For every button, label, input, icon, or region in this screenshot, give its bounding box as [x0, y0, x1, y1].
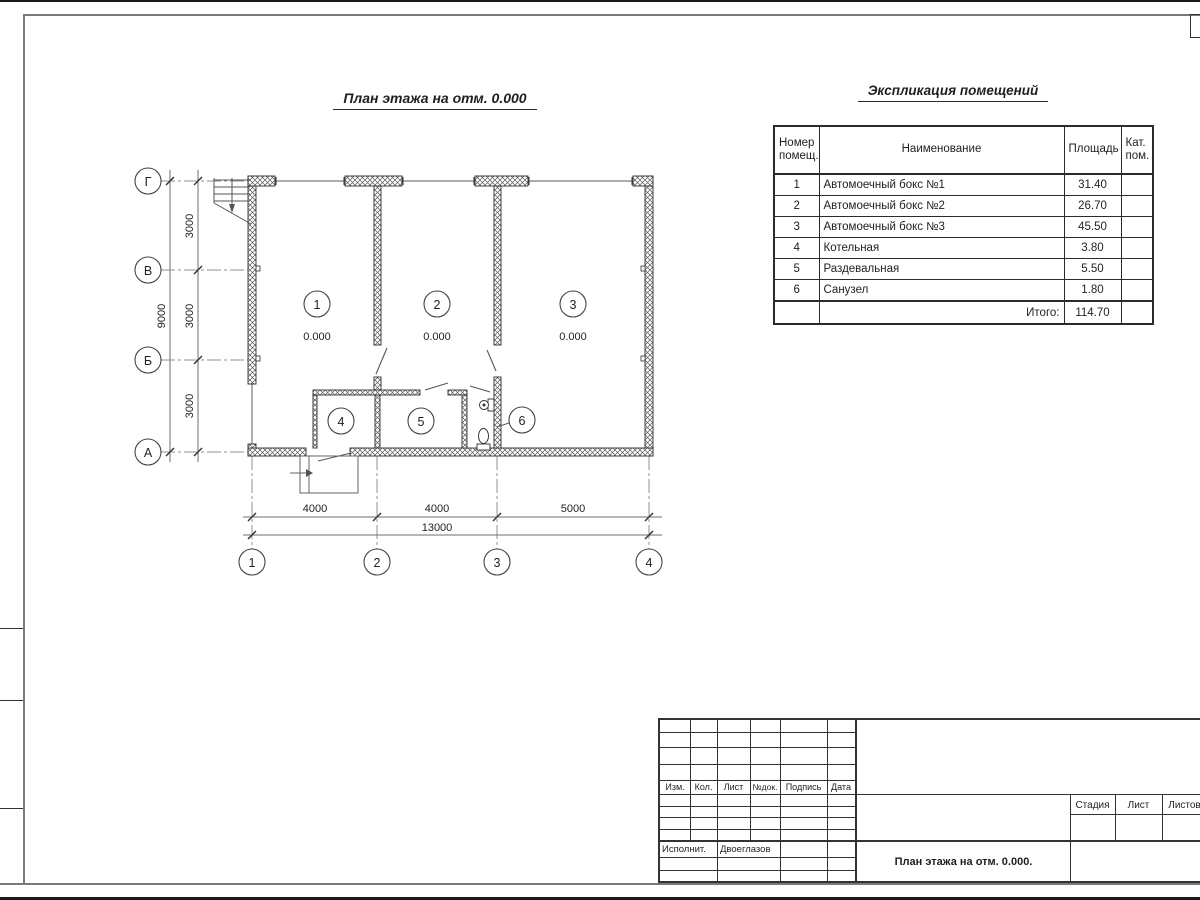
- tb-executor-label: Исполнит.: [662, 842, 717, 857]
- room-number: 5: [418, 415, 425, 429]
- axis-lines: [161, 181, 649, 549]
- titleblock-line: [660, 806, 855, 807]
- column-axis-bubbles: 1 2 3 4: [239, 549, 662, 575]
- titleblock-line: [660, 870, 855, 871]
- tb-col-podpis: Подпись: [780, 780, 827, 794]
- axis-label: 1: [249, 556, 256, 570]
- walls: [248, 176, 653, 456]
- dim-label: 3000: [184, 214, 196, 238]
- tb-col-dok: №док.: [750, 780, 780, 794]
- dimension-labels: 3000 3000 3000 9000 4000 4000 5000 13000: [156, 214, 585, 534]
- dim-label: 3000: [184, 394, 196, 418]
- titleblock-line: [660, 829, 855, 830]
- tb-stage-label: Стадия: [1070, 796, 1115, 814]
- dim-label: 4000: [425, 503, 449, 515]
- axis-label: Б: [144, 354, 152, 368]
- tb-sheet-label: Лист: [1115, 796, 1162, 814]
- elevation-marks: 0.000 0.000 0.000: [303, 331, 587, 343]
- room-bubbles: 1 2 3 4 5 6: [304, 291, 586, 434]
- tb-col-kol: Кол.: [690, 780, 717, 794]
- room-number: 4: [338, 415, 345, 429]
- dim-label: 13000: [422, 522, 453, 534]
- tb-sheets-label: Листов: [1162, 796, 1200, 814]
- room-number: 3: [570, 298, 577, 312]
- titleblock-line: [660, 732, 855, 733]
- room-number: 1: [314, 298, 321, 312]
- titleblock-line: [660, 857, 855, 858]
- title-block: Изм. Кол. Лист №док. Подпись Дата Исполн…: [658, 718, 1200, 883]
- axis-label: Г: [145, 175, 152, 189]
- tb-col-data: Дата: [827, 780, 855, 794]
- axis-label: В: [144, 264, 152, 278]
- axis-label: 3: [494, 556, 501, 570]
- room-number: 2: [434, 298, 441, 312]
- dim-label: 3000: [184, 304, 196, 328]
- dim-label: 9000: [156, 304, 168, 328]
- titleblock-line: [660, 794, 1200, 795]
- tb-doc-title: План этажа на отм. 0.000.: [857, 842, 1070, 881]
- axis-label: 2: [374, 556, 381, 570]
- toilet-tank-icon: [477, 444, 490, 450]
- dim-label: 5000: [561, 503, 585, 515]
- tb-col-list: Лист: [717, 780, 750, 794]
- sanitary-fixtures: [477, 399, 494, 450]
- dimension-lines: [170, 170, 662, 535]
- titleblock-line: [660, 764, 855, 765]
- titleblock-line: [660, 747, 855, 748]
- elevation-label: 0.000: [559, 331, 587, 343]
- tb-executor-name: Двоеглазов: [720, 842, 782, 857]
- entrance-porch: [290, 456, 358, 493]
- dimension-ticks: [166, 177, 653, 539]
- toilet-bowl-icon: [479, 429, 489, 444]
- tb-col-izm: Изм.: [660, 780, 690, 794]
- doors: [318, 348, 496, 461]
- room-number: 6: [519, 414, 526, 428]
- dim-label: 4000: [303, 503, 327, 515]
- axis-label: 4: [646, 556, 653, 570]
- drawing-sheet: План этажа на отм. 0.000 Экспликация пом…: [0, 0, 1200, 900]
- elevation-label: 0.000: [303, 331, 331, 343]
- titleblock-line: [660, 817, 855, 818]
- axis-label: А: [144, 446, 153, 460]
- titleblock-line: [1070, 814, 1200, 815]
- stair: [214, 178, 251, 224]
- elevation-label: 0.000: [423, 331, 451, 343]
